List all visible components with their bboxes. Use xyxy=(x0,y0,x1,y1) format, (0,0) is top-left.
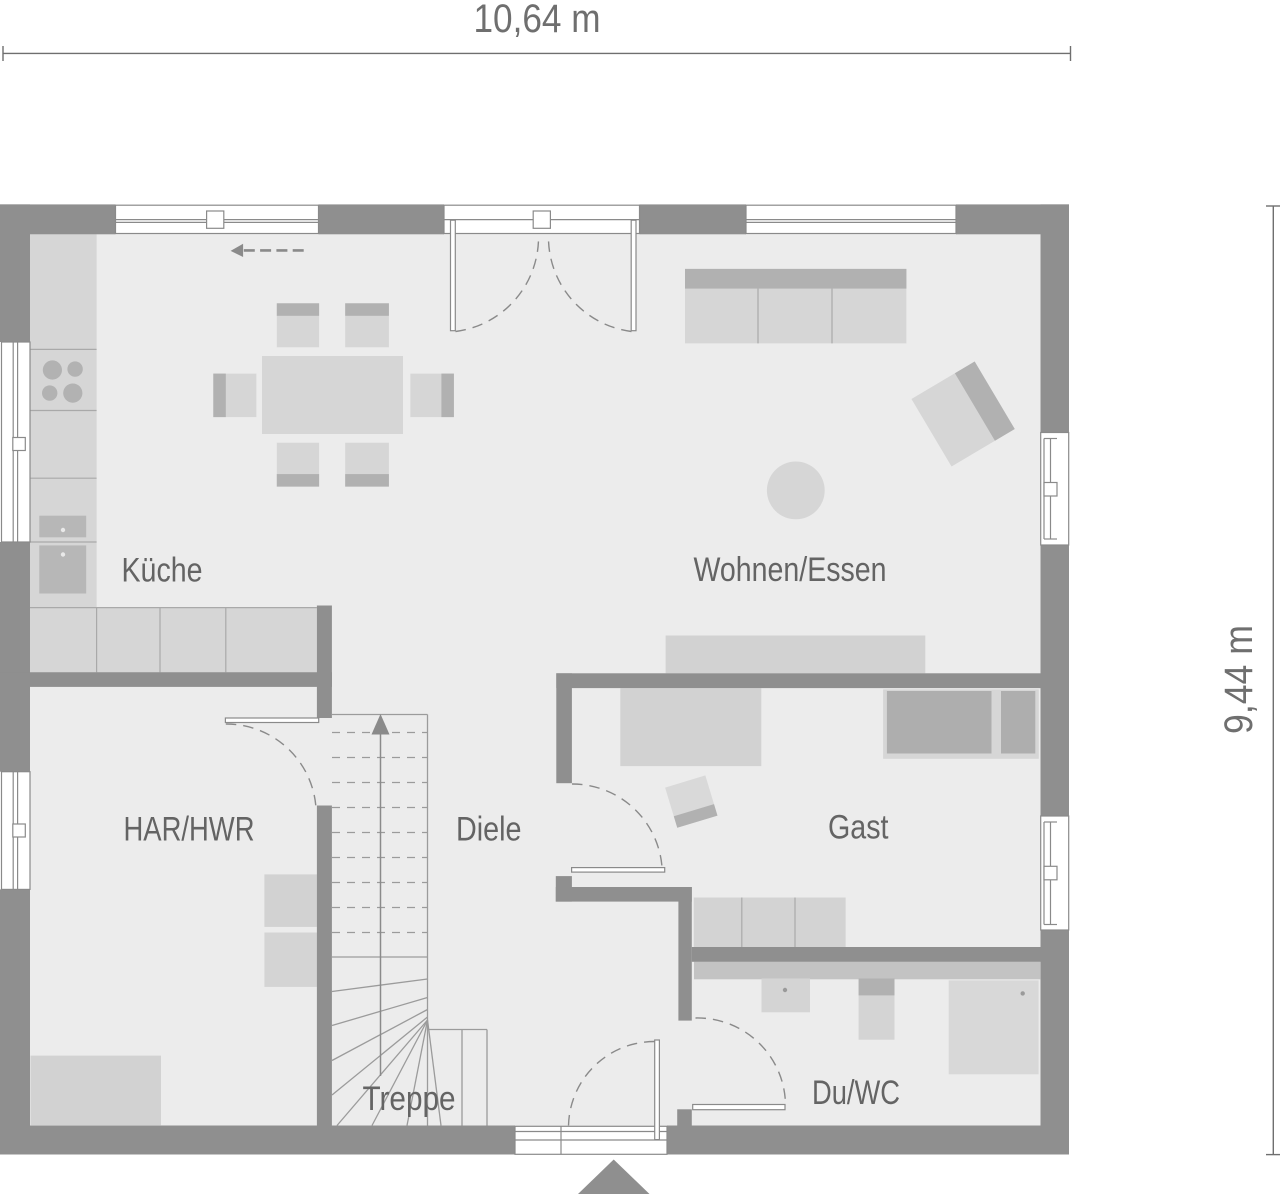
svg-text:10,64 m: 10,64 m xyxy=(474,0,601,41)
svg-text:9,44 m: 9,44 m xyxy=(1217,625,1261,734)
svg-text:Du/WC: Du/WC xyxy=(812,1074,900,1112)
svg-text:Treppe: Treppe xyxy=(363,1080,456,1118)
svg-text:Wohnen/Essen: Wohnen/Essen xyxy=(694,551,887,589)
svg-text:HAR/HWR: HAR/HWR xyxy=(124,811,255,849)
svg-text:Küche: Küche xyxy=(122,552,203,590)
svg-text:Gast: Gast xyxy=(828,809,889,847)
svg-text:Diele: Diele xyxy=(456,811,522,849)
